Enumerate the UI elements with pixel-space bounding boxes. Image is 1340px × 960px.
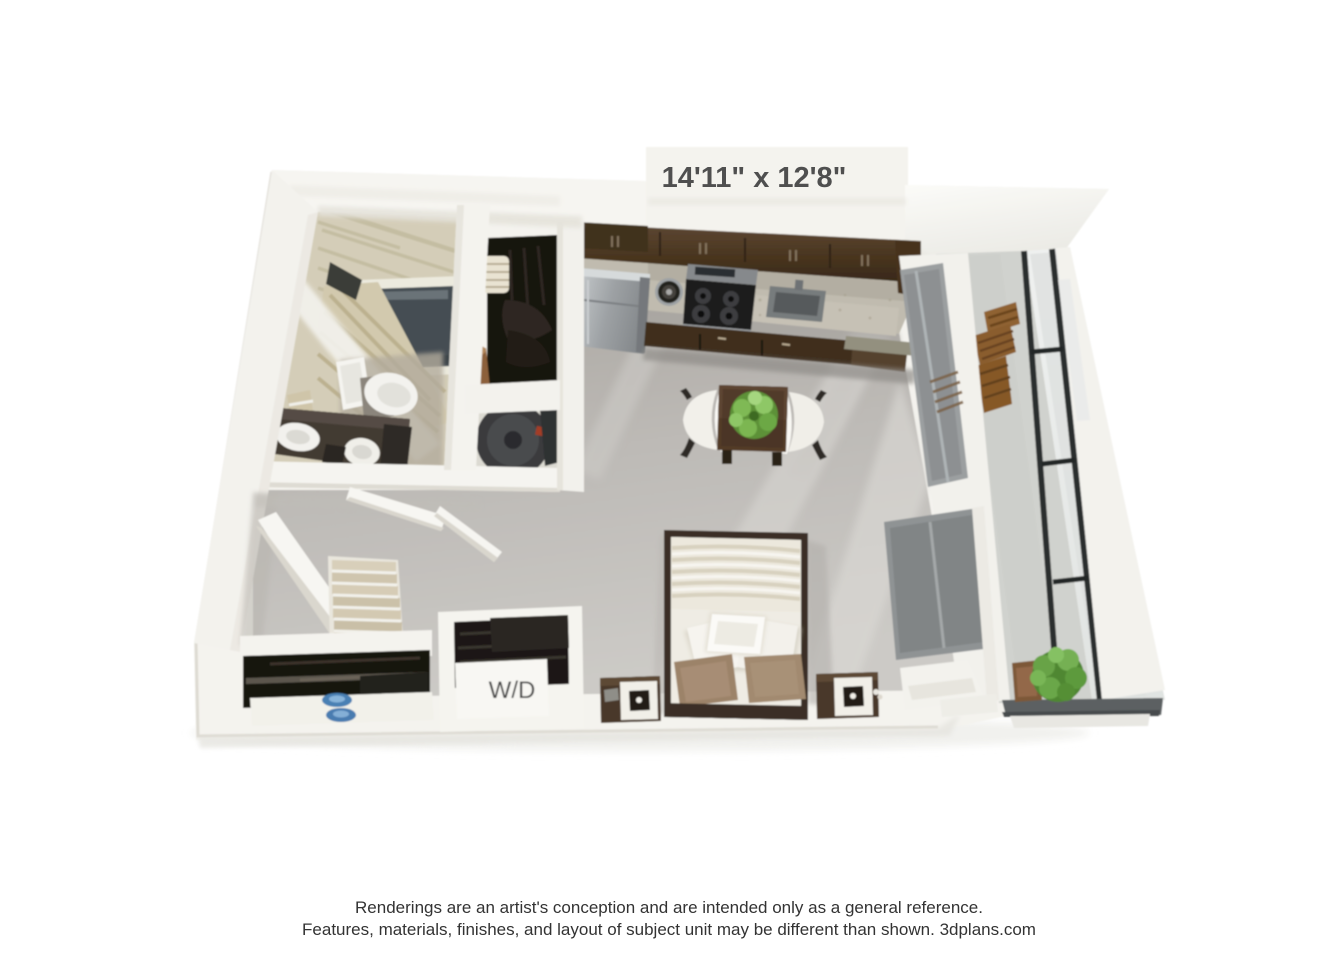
svg-text:14'11" x 12'8": 14'11" x 12'8" <box>662 162 847 194</box>
svg-text:W/D: W/D <box>489 677 536 704</box>
svg-text:Renderings are an artist's con: Renderings are an artist's conception an… <box>355 898 983 917</box>
svg-text:Features, materials, finishes,: Features, materials, finishes, and layou… <box>302 920 1036 939</box>
